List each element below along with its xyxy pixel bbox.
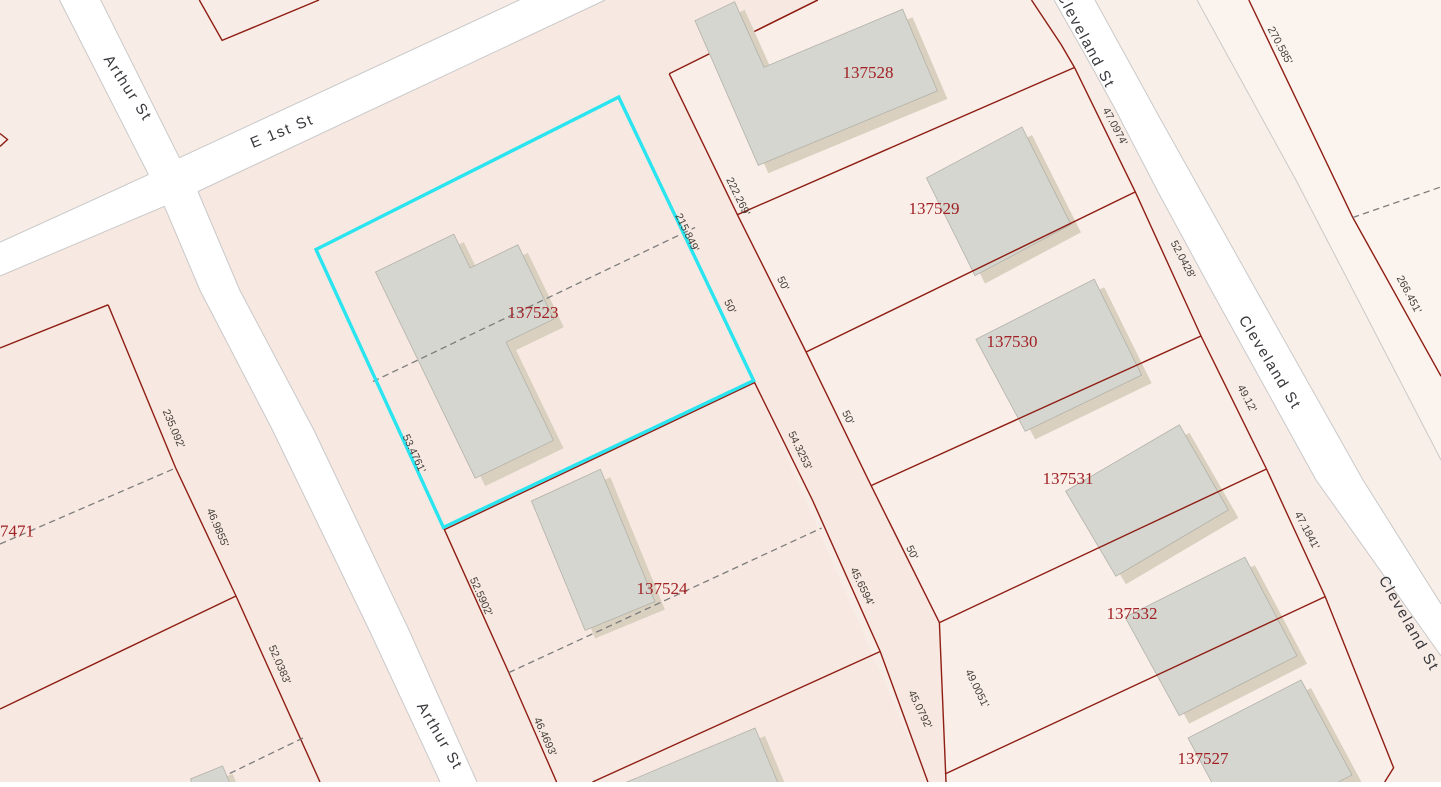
svg-text:137532: 137532 xyxy=(1107,604,1158,623)
svg-text:137531: 137531 xyxy=(1043,469,1094,488)
svg-text:137524: 137524 xyxy=(637,579,689,598)
svg-text:137529: 137529 xyxy=(909,199,960,218)
svg-text:37471: 37471 xyxy=(0,522,34,541)
svg-text:137523: 137523 xyxy=(508,303,559,322)
svg-text:137528: 137528 xyxy=(843,63,894,82)
svg-text:137527: 137527 xyxy=(1178,749,1230,768)
svg-text:137530: 137530 xyxy=(987,332,1038,351)
